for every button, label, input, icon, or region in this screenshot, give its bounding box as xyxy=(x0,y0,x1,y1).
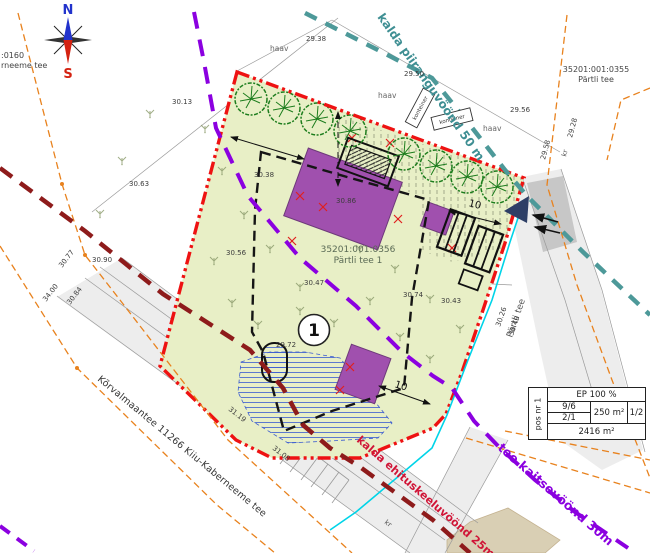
elevation-label: 29.38 xyxy=(306,35,326,43)
elevation-label: 29.72 xyxy=(276,341,296,349)
edge-parcel-code: :0160 xyxy=(1,51,24,60)
build-area-cell: 250 m² xyxy=(591,402,628,423)
position-number: 1 xyxy=(308,321,320,341)
south-needle xyxy=(64,40,73,64)
elevation-label: 30.90 xyxy=(92,256,112,264)
utility-poles xyxy=(60,182,87,370)
storeys-top: 9/6 xyxy=(548,402,590,413)
road-protection-line-sw xyxy=(0,526,34,551)
ratio-cell: 1/2 xyxy=(628,402,645,423)
species-label: haav xyxy=(270,44,289,53)
elevation-label: 30.43 xyxy=(441,297,461,305)
species-label: haav xyxy=(378,91,397,100)
compass-south-label: S xyxy=(63,67,72,82)
site-plan-drawing: 10 10 N S konteiner xyxy=(0,0,650,553)
elevation-label: 30.56 xyxy=(226,249,247,257)
elevation-label: 30.63 xyxy=(129,180,149,188)
north-needle xyxy=(64,17,73,40)
elevation-label: 30.26 xyxy=(494,306,508,328)
elevation-label: 29.28 xyxy=(566,117,579,138)
site-plan-canvas: 10 10 N S konteiner xyxy=(0,0,650,553)
kr-label: kr xyxy=(560,149,570,158)
storeys-bottom: 2/1 xyxy=(548,413,590,423)
spec-table: pos nr 1 EP 100 % 9/6 2/1 250 m² 1/2 241… xyxy=(528,387,646,440)
elevation-label: 30.77 xyxy=(57,249,76,270)
edge-parcel-name: rneeme tee xyxy=(1,61,47,70)
main-parcel-name: Pärtli tee 1 xyxy=(334,256,383,266)
compass-north-label: N xyxy=(63,3,74,18)
elevation-label: 30.74 xyxy=(403,291,424,299)
compass-rose: N S xyxy=(44,3,92,82)
elevation-label: 30.47 xyxy=(304,279,324,287)
spec-table-pos-cell: pos nr 1 xyxy=(529,388,548,439)
ep-cell: EP 100 % xyxy=(548,388,645,402)
species-label: haav xyxy=(483,124,502,133)
road-parcel-name: Pärtli tee xyxy=(578,75,614,84)
position-marker: 1 xyxy=(299,315,330,346)
elevation-label: 34.00 xyxy=(41,283,60,304)
elevation-label: 29.50 xyxy=(404,70,424,78)
road-parcel-code: 35201:001:0355 xyxy=(563,65,629,74)
elevation-label: 30.13 xyxy=(172,98,192,106)
storeys-cell: 9/6 2/1 xyxy=(548,402,591,423)
elevation-label: 30.38 xyxy=(254,171,274,179)
total-area-cell: 2416 m² xyxy=(548,423,645,439)
pos-nr-label: pos nr 1 xyxy=(534,397,543,430)
elevation-label: 29.56 xyxy=(510,106,531,114)
elevation-label: 30.86 xyxy=(336,197,357,205)
main-parcel-code: 35201:001:0356 xyxy=(321,245,396,255)
